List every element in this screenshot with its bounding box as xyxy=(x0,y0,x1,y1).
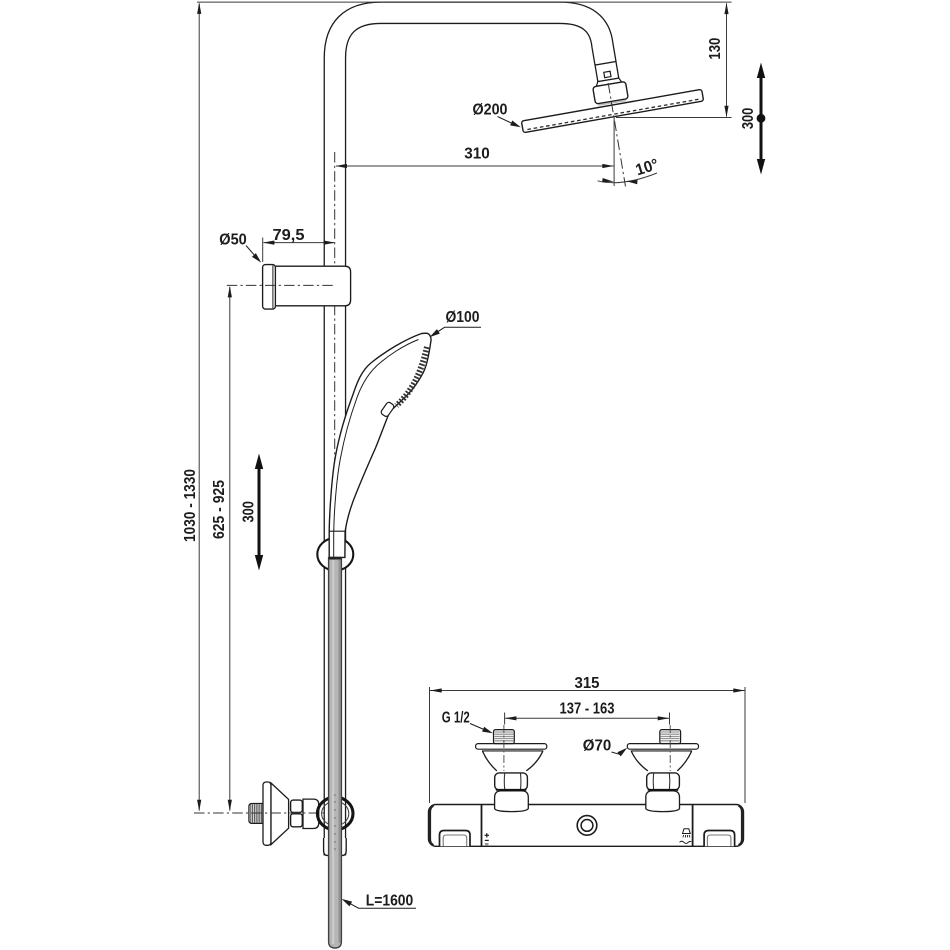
svg-text:300: 300 xyxy=(740,108,757,130)
svg-text:625 - 925: 625 - 925 xyxy=(211,480,228,539)
svg-text:Ø50: Ø50 xyxy=(219,232,247,249)
svg-text:310: 310 xyxy=(464,146,490,163)
svg-text:Ø70: Ø70 xyxy=(583,738,612,755)
svg-text:300: 300 xyxy=(241,501,258,523)
svg-text:Ø100: Ø100 xyxy=(446,309,480,326)
svg-text:1030 - 1330: 1030 - 1330 xyxy=(182,469,199,542)
svg-text:79,5: 79,5 xyxy=(273,227,305,244)
svg-text:L=1600: L=1600 xyxy=(366,893,414,910)
svg-text:G 1/2: G 1/2 xyxy=(442,709,470,726)
svg-text:315: 315 xyxy=(575,675,600,692)
svg-text:137 - 163: 137 - 163 xyxy=(560,701,615,718)
svg-text:130: 130 xyxy=(707,38,724,60)
svg-text:Ø200: Ø200 xyxy=(473,102,508,119)
